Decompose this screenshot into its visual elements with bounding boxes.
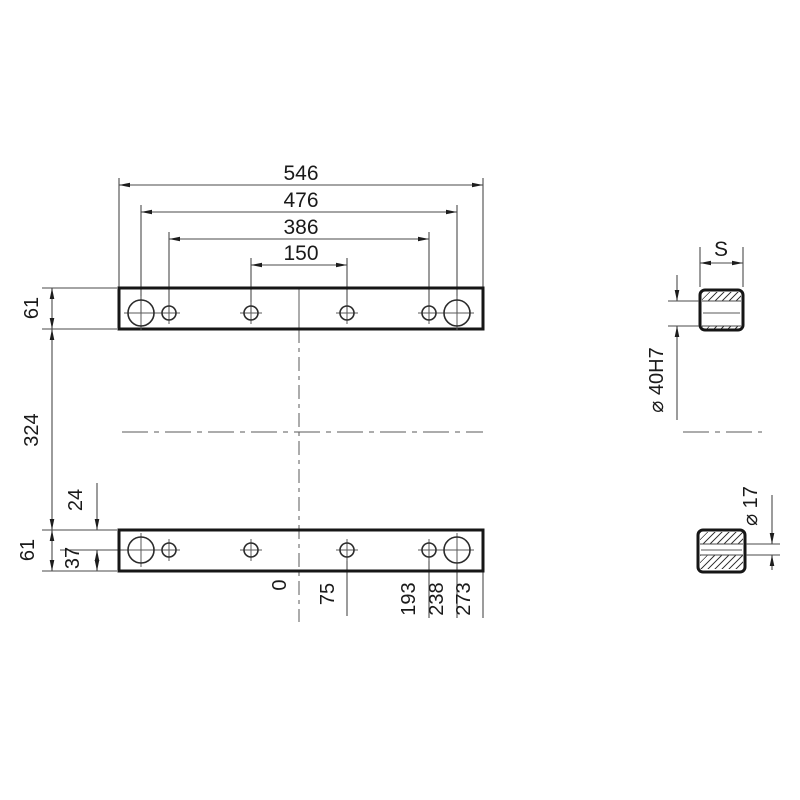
dim-label-top-bar-height: 61	[21, 297, 43, 319]
dim-label-476: 476	[283, 189, 318, 212]
ordinate-label-238: 238	[426, 582, 448, 615]
small-bore-label: ⌀ 17	[740, 486, 762, 526]
dim-label-546: 546	[283, 162, 318, 185]
dim-label-150: 150	[283, 242, 318, 265]
ordinate-label-273: 273	[453, 582, 475, 615]
large-bore-label: ⌀ 40H7	[646, 347, 668, 412]
bottom-bar	[119, 530, 483, 571]
dim-label-bottom-bar-height: 61	[17, 539, 39, 561]
dim-label-386: 386	[283, 216, 318, 239]
top-bar	[119, 288, 483, 330]
technical-drawing-canvas: 546 476 386 150 61 324 24 61 37 0 75 193…	[0, 0, 800, 800]
ordinate-label-75: 75	[317, 583, 339, 605]
ordinate-label-0: 0	[269, 579, 291, 590]
drawing-svg: 546 476 386 150 61 324 24 61 37 0 75 193…	[0, 0, 800, 800]
section-17-block	[698, 495, 780, 572]
dim-label-top-hole-offset: 24	[65, 489, 87, 511]
dim-label-bottom-hole-offset: 37	[62, 547, 84, 569]
section-s-block	[668, 247, 743, 420]
section-width-label: S	[714, 238, 728, 261]
dim-label-bars-gap: 324	[21, 413, 43, 446]
ordinate-label-193: 193	[398, 582, 420, 615]
